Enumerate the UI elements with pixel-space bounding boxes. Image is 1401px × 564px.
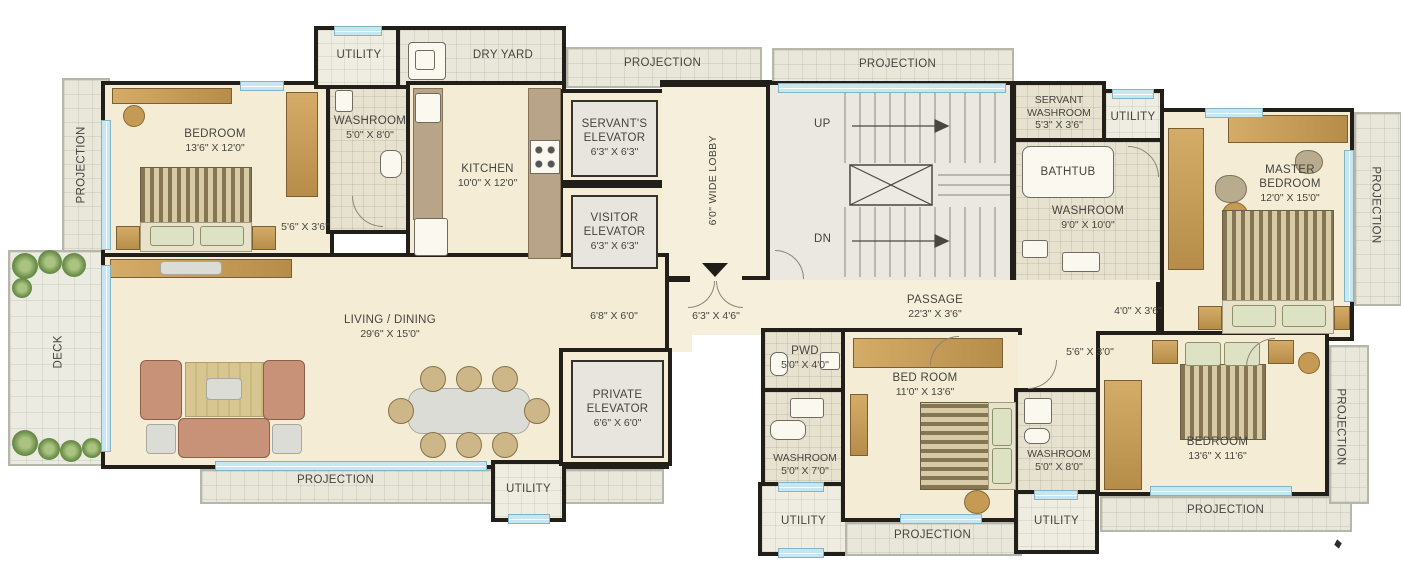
sink-icon <box>335 90 353 112</box>
window <box>1034 490 1078 500</box>
projection-label-right-1: PROJECTION <box>1320 198 1401 212</box>
staircase: UP DN <box>770 85 1010 280</box>
wardrobe <box>853 338 1003 368</box>
bed-blanket <box>1222 210 1334 302</box>
window <box>101 120 111 250</box>
fridge-icon <box>414 218 448 256</box>
wardrobe <box>1104 380 1142 490</box>
coffee-table <box>206 378 242 400</box>
washroom-b1-label: WASHROOM 5'0" X 7'0" <box>765 450 845 480</box>
bed1-lobby-dim: 5'6" X 3'6" <box>262 219 348 235</box>
dresser <box>1228 115 1348 143</box>
nightstand <box>1152 340 1178 364</box>
rug-round <box>964 490 990 514</box>
utility-b2-label: UTILITY <box>1018 514 1095 530</box>
washroom-master-label: WASHROOM 9'0" X 10'0" <box>1020 202 1156 234</box>
window <box>1112 89 1154 99</box>
vanity-icon <box>790 398 824 418</box>
window <box>1344 150 1354 302</box>
sofa <box>178 418 270 458</box>
window <box>778 548 824 558</box>
bed-blanket <box>1180 364 1266 440</box>
window <box>900 514 982 524</box>
passage-right-dim: 4'0" X 3'6" <box>1100 303 1176 319</box>
plant-icon <box>12 430 38 456</box>
toilet-icon <box>380 150 402 178</box>
dining-table <box>408 388 530 434</box>
lobby-label: 6'0" WIDE LOBBY <box>648 173 778 187</box>
projection-label-top-2: PROJECTION <box>835 57 960 73</box>
dining-chair <box>524 398 550 424</box>
dining-chair <box>492 366 518 392</box>
kitchen-label: KITCHEN 10'0" X 12'0" <box>430 160 545 192</box>
projection-label-bottom-1: PROJECTION <box>273 473 398 489</box>
armchair-sofa <box>140 360 182 420</box>
shower-icon <box>1024 398 1052 424</box>
side-table <box>272 424 302 454</box>
servants-elevator: SERVANT'S ELEVATOR 6'3" X 6'3" <box>571 100 658 177</box>
utility-bottom-small-label: UTILITY <box>495 482 562 498</box>
side-table <box>146 424 176 454</box>
staircase-treads <box>770 85 1010 280</box>
plant-icon <box>38 438 60 460</box>
dining-chair <box>388 398 414 424</box>
wall <box>660 80 772 87</box>
entry-dim: 6'3" X 4'6" <box>678 308 754 324</box>
corridor-b-dim: 5'6" X 3'0" <box>1045 344 1135 360</box>
nightstand <box>116 226 140 250</box>
dining-chair <box>492 432 518 458</box>
washroom-b2-label: WASHROOM 5'0" X 8'0" <box>1018 446 1100 476</box>
vanity-icon <box>1062 252 1100 272</box>
utility-top-right-label: UTILITY <box>1100 110 1166 126</box>
bathtub-small-icon <box>770 420 806 440</box>
pillow <box>1232 305 1276 327</box>
pillow <box>1185 342 1221 366</box>
nightstand <box>1334 306 1350 330</box>
projection-label-right-2: PROJECTION <box>1285 420 1395 434</box>
north-mark-icon <box>1334 539 1341 548</box>
stool <box>1298 352 1320 374</box>
bedroom-1-label: BEDROOM 13'6" X 12'0" <box>155 125 275 157</box>
up-label: UP <box>814 118 831 130</box>
window <box>508 514 550 524</box>
dining-chair <box>456 432 482 458</box>
bed-blanket <box>140 167 252 224</box>
utility-b1-label: UTILITY <box>762 514 845 530</box>
pillow <box>992 448 1012 484</box>
armchair-sofa <box>263 360 305 420</box>
servant-washroom-label: SERVANT WASHROOM 5'3" X 3'6" <box>1016 90 1102 136</box>
dry-yard-label: DRY YARD <box>448 48 558 64</box>
utility-top-left-label: UTILITY <box>318 48 400 64</box>
private-elevator-label: PRIVATE ELEVATOR 6'6" X 6'0" <box>587 389 649 429</box>
floor-plan: PROJECTION DECK BEDROOM 13'6" X 12'0" 5'… <box>0 0 1401 564</box>
mirror-stool <box>123 105 145 127</box>
washing-machine-door-icon <box>415 50 435 70</box>
window <box>215 461 487 471</box>
bathtub-icon: BATHTUB <box>1022 146 1114 198</box>
plant-icon <box>12 253 38 279</box>
window <box>240 81 284 91</box>
foyer-dim: 6'8" X 6'0" <box>574 308 654 324</box>
dining-chair <box>420 366 446 392</box>
visitor-elevator: VISITOR ELEVATOR 6'3" X 6'3" <box>571 195 658 269</box>
living-dining-label: LIVING / DINING 29'6" X 15'0" <box>315 310 465 344</box>
pillow <box>200 226 244 246</box>
projection-label-top-1: PROJECTION <box>600 56 725 72</box>
servants-elevator-label: SERVANT'S ELEVATOR 6'3" X 6'3" <box>582 118 648 158</box>
pillow <box>1282 305 1326 327</box>
projection-label-bottom-2: PROJECTION <box>870 528 995 544</box>
entrance-arrow-icon <box>702 263 728 277</box>
bedroom-3-label: BEDROOM 13'6" X 11'6" <box>1150 432 1285 466</box>
bed-blanket <box>920 402 990 490</box>
pwd-label: PWD 5'0" X 4'0" <box>765 342 845 374</box>
pillow <box>150 226 194 246</box>
plant-icon <box>60 440 82 462</box>
nightstand <box>1198 306 1222 330</box>
projection-label-bottom-3: PROJECTION <box>1163 503 1288 519</box>
plant-icon <box>12 278 32 298</box>
dining-chair <box>456 366 482 392</box>
kitchen-sink-icon <box>415 93 441 123</box>
projection-strip-bottom-1 <box>200 469 664 504</box>
visitor-elevator-label: VISITOR ELEVATOR 6'3" X 6'3" <box>584 212 646 252</box>
wardrobe <box>286 92 318 197</box>
dn-label: DN <box>814 233 831 245</box>
deck-label: DECK <box>30 345 90 359</box>
bedside-unit <box>850 394 868 456</box>
tv-icon <box>160 261 222 275</box>
window <box>778 482 824 492</box>
washroom-1-label: WASHROOM 5'0" X 8'0" <box>330 112 410 144</box>
window <box>1205 108 1263 118</box>
dining-chair <box>420 432 446 458</box>
private-elevator: PRIVATE ELEVATOR 6'6" X 6'0" <box>571 360 664 458</box>
window <box>334 26 382 36</box>
pillow <box>992 408 1012 446</box>
plant-icon <box>38 250 62 274</box>
projection-label-left: PROJECTION <box>28 158 138 172</box>
plant-icon <box>82 438 102 458</box>
window <box>101 265 111 452</box>
wardrobe <box>1168 128 1204 270</box>
sink-icon <box>1024 428 1050 444</box>
bedroom-2-label: BED ROOM 11'0" X 13'6" <box>860 368 990 402</box>
plant-icon <box>62 253 86 277</box>
window <box>1150 486 1292 496</box>
console-table <box>112 88 232 104</box>
passage-label: PASSAGE 22'3" X 3'6" <box>860 290 1010 324</box>
sink-icon <box>1022 240 1048 258</box>
window <box>778 83 1006 93</box>
